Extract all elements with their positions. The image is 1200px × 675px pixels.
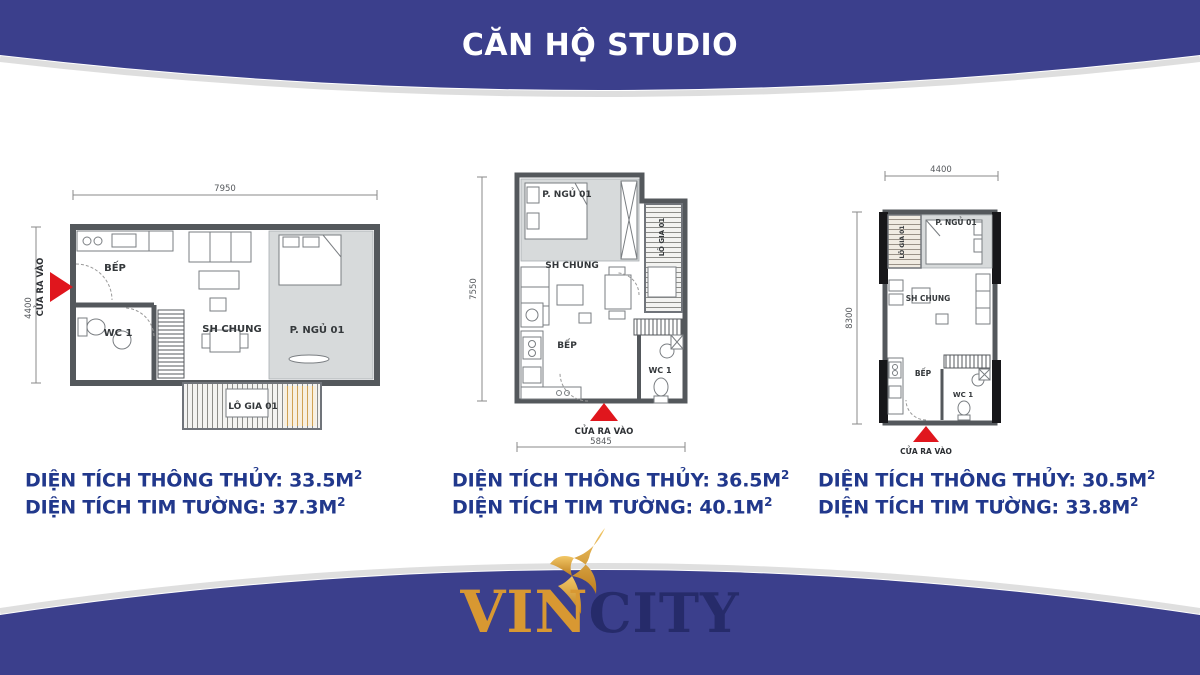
room-label-wc: WC 1	[648, 366, 671, 375]
dimension-label-bottom: 5845	[590, 437, 612, 447]
floor-plan-1: 7950 4400 BẾP WC 1 SH CHUNG P. NGỦ 01	[20, 168, 400, 463]
logo-city: CITY	[589, 581, 740, 645]
area-line: DIỆN TÍCH THÔNG THỦY: 33.5M2	[25, 467, 362, 494]
area-spec-plan-2: DIỆN TÍCH THÔNG THỦY: 36.5M2 DIỆN TÍCH T…	[452, 467, 789, 522]
room-label-bedroom: P. NGỦ 01	[290, 322, 345, 336]
room-label-wc: WC 1	[953, 391, 973, 399]
entrance-arrow-icon	[50, 272, 73, 302]
area-spec-plan-3: DIỆN TÍCH THÔNG THỦY: 30.5M2 DIỆN TÍCH T…	[818, 467, 1155, 522]
dimension-label-top: 7950	[214, 184, 236, 194]
area-line: DIỆN TÍCH TIM TƯỜNG: 37.3M2	[25, 494, 362, 521]
page-title: CĂN HỘ STUDIO	[0, 28, 1200, 63]
floor-plan-2: 7550 5845 P. NGỦ 01 SH CHUNG BẾP WC	[455, 155, 735, 470]
room-label-bedroom: P. NGỦ 01	[935, 217, 976, 227]
floor-plan-3: 4400 8300 P. NGỦ 01 SH CHUNG BẾP WC 1 LÔ…	[828, 162, 1038, 462]
area-line: DIỆN TÍCH TIM TƯỜNG: 33.8M2	[818, 494, 1155, 521]
vincity-logo: VINCITY	[0, 583, 1200, 641]
room-label-wc: WC 1	[104, 328, 133, 339]
area-spec-plan-1: DIỆN TÍCH THÔNG THỦY: 33.5M2 DIỆN TÍCH T…	[25, 467, 362, 522]
room-label-kitchen: BẾP	[915, 368, 932, 378]
room-label-balcony: LÔ GIA 01	[899, 225, 906, 258]
room-label-living: SH CHUNG	[545, 261, 599, 271]
room-label-living: SH CHUNG	[906, 294, 951, 303]
wardrobe	[944, 355, 990, 368]
dimension-label-left: 7550	[469, 278, 479, 300]
top-banner	[0, 0, 1200, 135]
room-label-balcony: LÔ GIA 01	[657, 218, 666, 257]
entrance-label: CỬA RA VÀO	[33, 258, 46, 317]
entrance-arrow-icon	[590, 403, 618, 421]
area-line: DIỆN TÍCH TIM TƯỜNG: 40.1M2	[452, 494, 789, 521]
logo-vin: VIN	[460, 578, 588, 646]
dimension-label-top: 4400	[930, 165, 952, 175]
room-label-living: SH CHUNG	[202, 324, 261, 335]
entrance-label: CỬA RA VÀO	[900, 446, 952, 456]
entrance-label: CỬA RA VÀO	[575, 424, 634, 437]
entrance-arrow-icon	[913, 426, 939, 442]
area-line: DIỆN TÍCH THÔNG THỦY: 36.5M2	[452, 467, 789, 494]
area-line: DIỆN TÍCH THÔNG THỦY: 30.5M2	[818, 467, 1155, 494]
room-label-balcony: LÔ GIA 01	[228, 400, 278, 412]
dimension-label-left: 8300	[845, 307, 855, 329]
wardrobe	[158, 310, 184, 378]
wardrobe	[634, 319, 682, 335]
dimension-label-left: 4400	[24, 297, 34, 319]
